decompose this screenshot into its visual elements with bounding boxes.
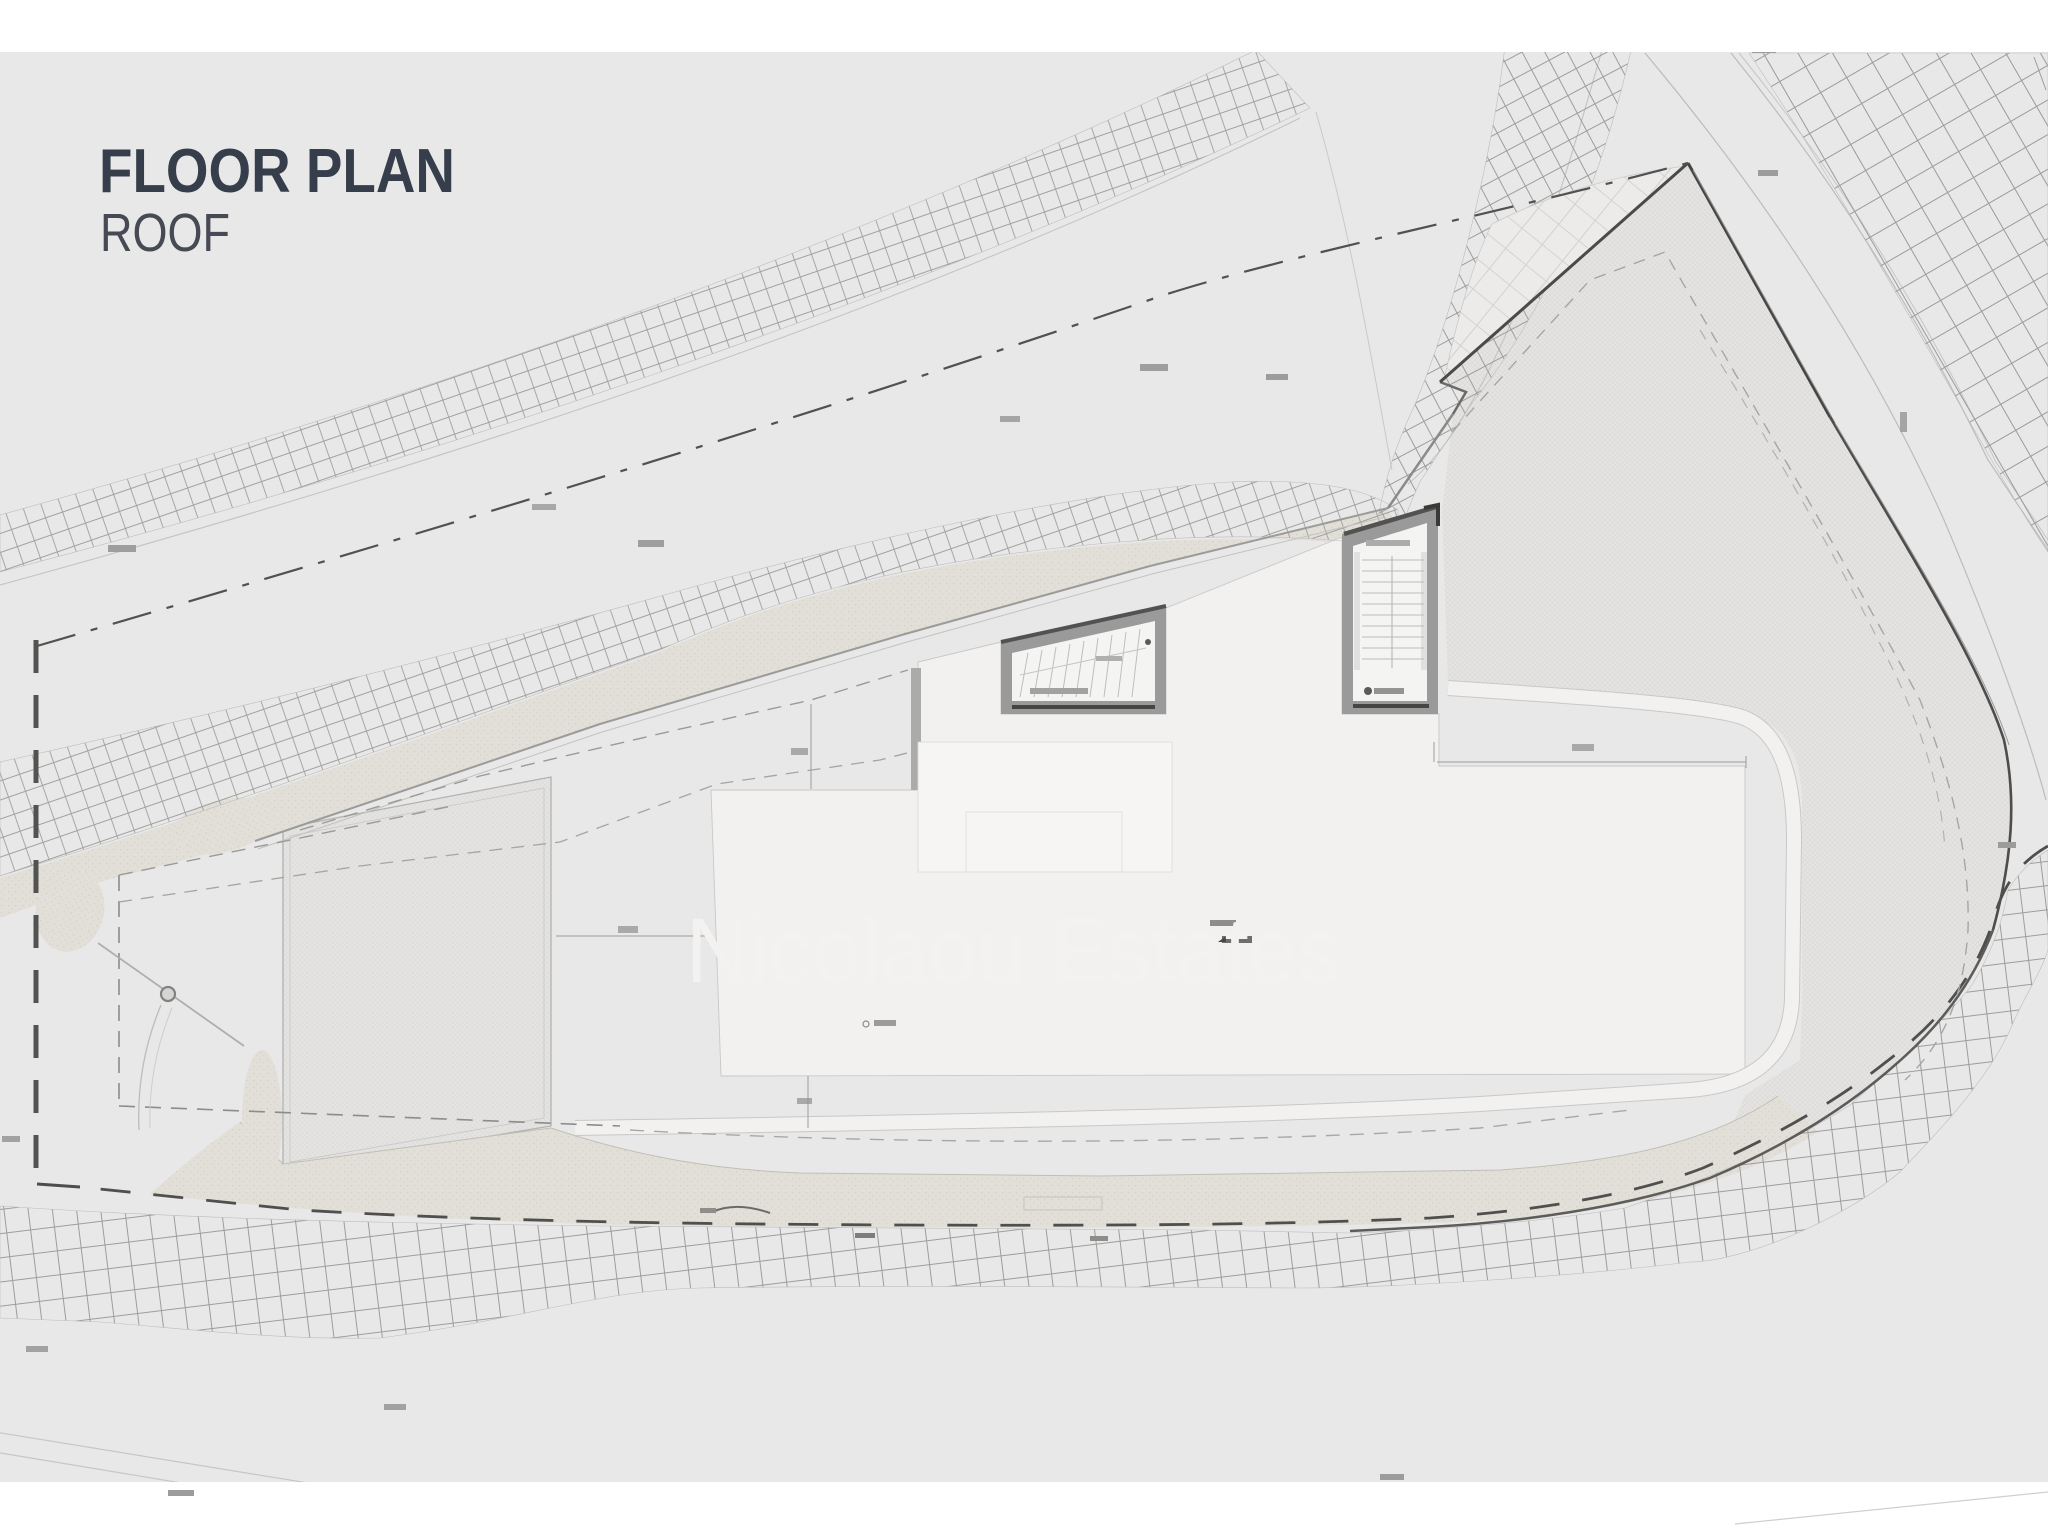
svg-text:FLOOR PLAN: FLOOR PLAN <box>99 137 455 206</box>
svg-text:ROOF: ROOF <box>100 203 230 263</box>
svg-text:Nicolaou Estates: Nicolaou Estates <box>686 900 1341 1002</box>
